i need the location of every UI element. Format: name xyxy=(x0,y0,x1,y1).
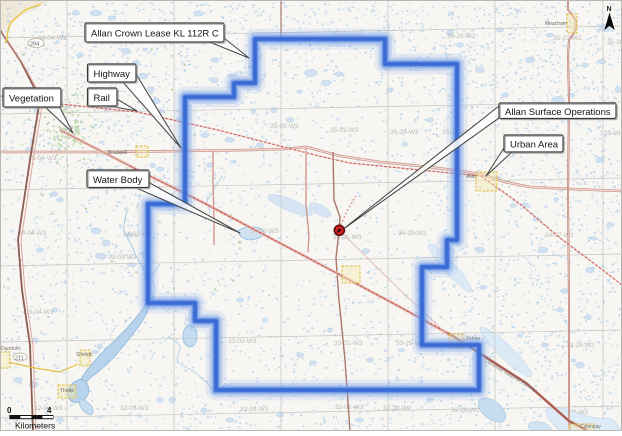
svg-text:Shields: Shields xyxy=(76,352,93,358)
svg-text:35-26-W2: 35-26-W2 xyxy=(604,130,622,137)
svg-text:4: 4 xyxy=(47,406,52,415)
svg-text:Allan Surface Operations: Allan Surface Operations xyxy=(505,107,611,118)
svg-text:33-03-W3: 33-03-W3 xyxy=(108,254,137,261)
svg-text:Water Body: Water Body xyxy=(93,175,143,186)
svg-text:Highway: Highway xyxy=(94,69,131,80)
svg-text:36-29-W2: 36-29-W2 xyxy=(447,33,476,40)
svg-text:211: 211 xyxy=(15,356,24,362)
svg-text:Allan Crown Lease KL 112R C: Allan Crown Lease KL 112R C xyxy=(91,29,219,40)
svg-text:35-03-W3: 35-03-W3 xyxy=(270,123,299,130)
svg-text:Rail: Rail xyxy=(94,93,110,104)
svg-text:33-01-W3: 33-01-W3 xyxy=(334,340,363,347)
svg-text:32-02-W3: 32-02-W3 xyxy=(240,406,269,413)
svg-text:35-27-W2: 35-27-W2 xyxy=(553,35,582,42)
svg-text:Meacham: Meacham xyxy=(545,21,567,27)
svg-text:34-29-W2: 34-29-W2 xyxy=(398,230,427,237)
svg-text:32-01-W3: 32-01-W3 xyxy=(335,404,364,411)
svg-text:33-26-W2: 33-26-W2 xyxy=(566,342,595,349)
svg-text:N: N xyxy=(607,6,612,13)
svg-text:35-29-W2: 35-29-W2 xyxy=(390,129,419,136)
svg-text:Allan: Allan xyxy=(466,174,477,180)
svg-text:33-04-W3: 33-04-W3 xyxy=(25,309,54,316)
svg-text:Vegetation: Vegetation xyxy=(9,94,54,105)
svg-text:32-29-W2: 32-29-W2 xyxy=(383,405,412,412)
svg-text:33-02-W3: 33-02-W3 xyxy=(228,338,257,345)
svg-text:35-26-W2: 35-26-W2 xyxy=(607,39,622,46)
svg-text:0: 0 xyxy=(7,406,12,415)
svg-text:35-01-W3: 35-01-W3 xyxy=(330,127,359,134)
svg-text:Kilometers: Kilometers xyxy=(15,421,55,431)
svg-text:Bradwell: Bradwell xyxy=(108,150,127,156)
svg-text:Dundurn: Dundurn xyxy=(1,346,20,352)
svg-text:32-28-W2: 32-28-W2 xyxy=(451,407,480,414)
svg-text:35-04-W3: 35-04-W3 xyxy=(28,155,57,162)
svg-text:Urban Area: Urban Area xyxy=(510,140,559,151)
svg-text:Thode: Thode xyxy=(60,388,74,394)
svg-text:294: 294 xyxy=(30,42,39,48)
svg-text:Colonsay: Colonsay xyxy=(580,424,601,430)
svg-text:32-03-W3: 32-03-W3 xyxy=(120,405,149,412)
